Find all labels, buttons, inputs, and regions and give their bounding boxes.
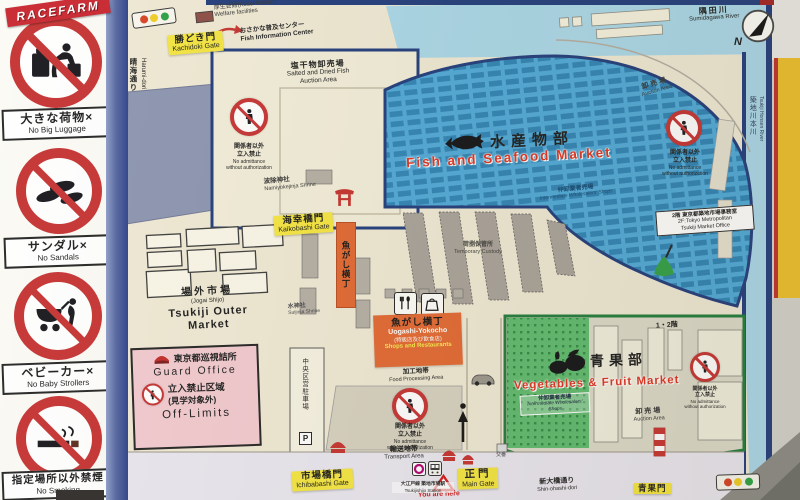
oedo-line-icon bbox=[412, 462, 426, 476]
floors-label: 1・2階 bbox=[656, 321, 678, 330]
no-luggage-sign-icon bbox=[10, 16, 102, 108]
guard-cap-icon bbox=[152, 353, 170, 365]
tsukiji-market-map-photo: 厚生会館(Kosei Kaikan)Welfare facilities おさか… bbox=[0, 0, 800, 500]
welfare-building-icon bbox=[196, 11, 214, 23]
no-admittance-sign bbox=[666, 110, 702, 146]
off-limits-jp: 立入禁止区域 bbox=[167, 379, 224, 395]
no-admittance-text: 関係者以外立入禁止 No admittancewithout authoriza… bbox=[650, 150, 720, 178]
no-admittance-text: 関係者以外 立入禁止 No admittance without authori… bbox=[674, 386, 736, 410]
uogashi-yokocho-box: 魚がし横丁 Uogashi-Yokocho (特販店及び飲食店) Shops a… bbox=[373, 312, 463, 367]
uogashi-alley-strip: 魚がし横丁 bbox=[336, 222, 356, 308]
train-icon bbox=[428, 461, 442, 476]
compass-icon bbox=[740, 8, 776, 44]
prohibition-signs-column: 大きな荷物× No Big Luggage サンダル× No Sandals bbox=[0, 0, 113, 500]
compass-n-label: N bbox=[734, 36, 742, 49]
vegetables-icon bbox=[547, 347, 589, 377]
map-frame-top bbox=[206, 0, 772, 5]
no-sandals-sign-icon bbox=[16, 148, 102, 234]
yellow-sign-edge bbox=[776, 58, 800, 298]
intermediate-shops-label: 仲卸業者売場 Intermediate Wholesalers' Shops bbox=[520, 392, 591, 415]
no-luggage-label: 大きな荷物× No Big Luggage bbox=[1, 106, 112, 141]
traffic-light-icon bbox=[716, 473, 761, 491]
guard-office-jp: 東京都巡視詰所 bbox=[173, 350, 236, 365]
tsukiji-river-label: 築地川本川 Tsukiji Honsen River bbox=[748, 96, 763, 141]
sui-shrine-label: 水神社 Suijinja Shrine bbox=[288, 302, 321, 317]
off-limits-jp2: (見学対象外) bbox=[168, 393, 225, 407]
transport-area-label: 輸送地帯 Transport Area bbox=[370, 445, 438, 463]
no-admittance-sign bbox=[392, 388, 428, 424]
outer-market-label: 場外市場 (Jogai Shijo) Tsukiji Outer Market bbox=[149, 283, 267, 335]
restaurant-icon bbox=[394, 292, 417, 315]
no-admittance-text: 関係者以外立入禁止 No admittancewithout authoriza… bbox=[205, 144, 293, 172]
car-icon bbox=[470, 372, 496, 386]
luggage-icon bbox=[29, 40, 84, 83]
station-label: 大江戸線 築地市場駅 Tsukijishijo Station bbox=[392, 482, 454, 493]
main-gate-label: 正門 Main Gate bbox=[458, 467, 499, 490]
no-strollers-label: ベビーカー× No Baby Strollers bbox=[1, 360, 114, 395]
no-admittance-sign bbox=[690, 352, 720, 382]
parking-icon: P bbox=[299, 432, 312, 445]
koban-label: 交番 bbox=[496, 453, 506, 459]
sign-frame-strip bbox=[106, 0, 128, 500]
harumi-dori-road bbox=[126, 84, 216, 224]
kaikobashi-gate-label: 海幸橋門 Kaikobashi Gate bbox=[273, 212, 334, 236]
ichibabashi-gate-label: 市場橋門 Ichibabashi Gate bbox=[292, 468, 354, 491]
no-admittance-sign bbox=[230, 98, 268, 136]
cigarette-icon bbox=[34, 419, 84, 459]
map-frame-right bbox=[766, 0, 772, 500]
sandals-icon bbox=[34, 171, 84, 211]
stroller-icon bbox=[32, 296, 84, 337]
cut-label-strip bbox=[56, 490, 104, 500]
veg-market-jp-label: 青果部 bbox=[590, 351, 648, 369]
seika-flag-marker bbox=[654, 428, 665, 456]
no-sandals-label: サンダル× No Sandals bbox=[3, 234, 112, 269]
koban-building bbox=[497, 444, 507, 452]
seika-gate-label: 青果門 bbox=[634, 483, 671, 494]
temporary-custody-label: 荷捌保管所 Temporary Custody bbox=[438, 242, 518, 256]
ginkgo-leaf-icon bbox=[652, 254, 676, 278]
no-strollers-sign-icon bbox=[14, 272, 102, 360]
off-limits-en: Off-Limits bbox=[136, 406, 256, 422]
guard-office-box: 東京都巡視詰所 Guard Office 立入禁止区域 (見学対象外) Off-… bbox=[130, 344, 261, 450]
no-entry-icon bbox=[142, 383, 165, 406]
parking-label: 中央区営駐車場 bbox=[300, 358, 308, 416]
pedestrian-icon bbox=[456, 402, 470, 444]
harumi-dori-label: 晴海通り Harumi-dori bbox=[128, 58, 146, 92]
